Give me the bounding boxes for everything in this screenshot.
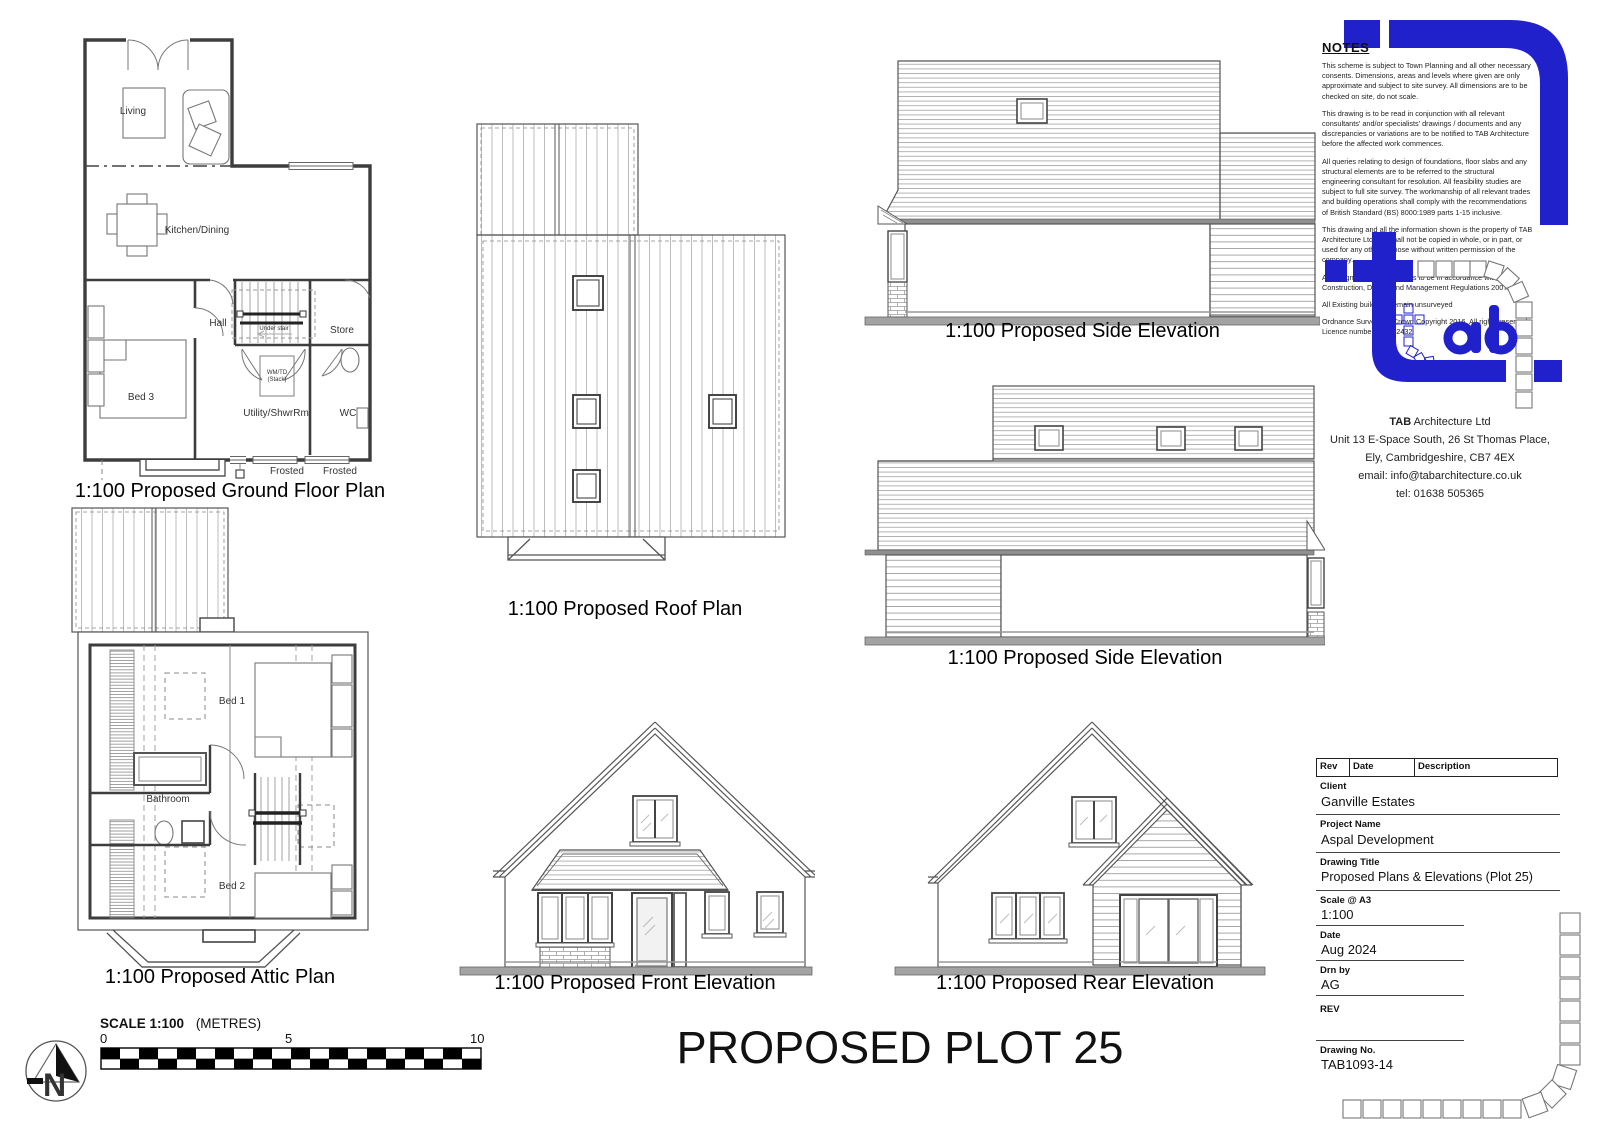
attic-plan-drawing: Bed 1 Bathroom Bed 2 — [60, 505, 400, 975]
side-elevation-1-drawing — [845, 50, 1320, 338]
label-bed3: Bed 3 — [128, 392, 155, 403]
front-door — [632, 893, 686, 969]
ground-floor-plan-drawing: Living Kitchen/Dining Hall Store Bed 3 U… — [60, 8, 400, 482]
label-bathroom: Bathroom — [146, 794, 189, 805]
caption-attic-plan: 1:100 Proposed Attic Plan — [55, 966, 385, 989]
label-frosted-1: Frosted — [270, 466, 304, 477]
tab-logo — [1320, 230, 1580, 415]
rear-left-window — [989, 893, 1067, 943]
rear-elevation-drawing — [880, 695, 1270, 995]
scale-bar-graphic — [100, 1047, 484, 1071]
scale-tick-0: 0 — [100, 1031, 107, 1046]
rev-col: Rev — [1317, 759, 1350, 776]
drawing-title-label: Drawing Title — [1320, 857, 1379, 868]
drawing-sheet: { "sheet": { "big_title": "PROPOSED PLOT… — [0, 0, 1600, 1131]
border-square-chain — [1330, 890, 1600, 1131]
living-furniture — [123, 88, 229, 164]
drawing-title-value: Proposed Plans & Elevations (Plot 25) — [1321, 870, 1533, 884]
entrance-door-opening — [126, 36, 190, 44]
bay-window-front — [536, 893, 614, 969]
label-bed1: Bed 1 — [219, 696, 246, 707]
project-label: Project Name — [1320, 819, 1381, 830]
entrance-door-arcs — [128, 40, 188, 70]
label-wc: WC — [340, 408, 357, 419]
caption-side-elevation-1: 1:100 Proposed Side Elevation — [845, 320, 1320, 343]
rear-gable-window — [1069, 797, 1119, 847]
client-value: Ganville Estates — [1321, 794, 1415, 809]
firm-tel: tel: 01638 505365 — [1318, 488, 1562, 500]
label-wm-td-2: (Stack) — [267, 377, 286, 383]
bay-window — [140, 460, 225, 476]
caption-roof-plan: 1:100 Proposed Roof Plan — [460, 598, 790, 621]
date-col: Date — [1350, 759, 1415, 776]
kitchen-table — [107, 194, 167, 256]
revision-table-header: Rev Date Description — [1316, 758, 1558, 777]
scale-bar-label: SCALE 1:100 (METRES) — [100, 1016, 500, 1031]
notes-paragraph: All queries relating to design of founda… — [1322, 157, 1534, 218]
roof-plan-drawing — [460, 110, 790, 570]
side-elevation-2-drawing — [845, 375, 1325, 650]
firm-address: TAB Architecture Ltd Unit 13 E-Space Sou… — [1318, 416, 1562, 506]
caption-side-elevation-2: 1:100 Proposed Side Elevation — [845, 647, 1325, 670]
wm-td-appliance — [260, 356, 294, 396]
scale-tick-10: 10 — [470, 1031, 484, 1046]
label-utility: Utility/ShwrRm — [243, 408, 309, 419]
caption-front-elevation: 1:100 Proposed Front Elevation — [455, 972, 815, 995]
label-kitchen-dining: Kitchen/Dining — [165, 225, 229, 236]
porch-roof-plan — [508, 537, 665, 560]
label-frosted-2: Frosted — [323, 466, 357, 477]
staircase — [232, 282, 315, 343]
label-under-stair: Under stair — [259, 326, 288, 332]
firm-address-line1: Unit 13 E-Space South, 26 St Thomas Plac… — [1318, 434, 1562, 446]
client-label: Client — [1320, 781, 1346, 792]
notes-paragraph: This drawing is to be read in conjunctio… — [1322, 109, 1534, 150]
notes-heading: NOTES — [1322, 40, 1534, 55]
caption-rear-elevation: 1:100 Proposed Rear Elevation — [880, 972, 1270, 995]
bed1-furniture — [255, 655, 352, 757]
dormer — [107, 930, 300, 967]
firm-email: email: info@tabarchitecture.co.uk — [1318, 470, 1562, 482]
scale-bar: SCALE 1:100 (METRES) 0 5 10 — [100, 1016, 500, 1071]
bed2-furniture — [255, 865, 352, 918]
ground-line — [865, 637, 1325, 645]
description-col: Description — [1415, 759, 1557, 776]
label-bed2: Bed 2 — [219, 881, 246, 892]
label-living: Living — [120, 106, 146, 117]
label-hall: Hall — [209, 318, 226, 329]
label-wm-td: WM/TD — [267, 370, 288, 376]
logo-letters-ab — [1448, 305, 1513, 353]
sheet-title: PROPOSED PLOT 25 — [600, 1022, 1200, 1074]
firm-address-line2: Ely, Cambridgeshire, CB7 4EX — [1318, 452, 1562, 464]
notes-paragraph: This scheme is subject to Town Planning … — [1322, 61, 1534, 102]
project-value: Aspal Development — [1321, 832, 1434, 847]
rear-french-doors — [1120, 895, 1217, 967]
gable-window — [630, 796, 680, 846]
label-store: Store — [330, 325, 354, 336]
front-elevation-drawing — [455, 695, 815, 995]
north-letter: N — [43, 1067, 66, 1103]
firm-name: TAB Architecture Ltd — [1318, 416, 1562, 428]
north-arrow-icon: N — [23, 1038, 89, 1104]
caption-ground-floor-plan: 1:100 Proposed Ground Floor Plan — [60, 480, 400, 503]
scale-tick-5: 5 — [285, 1031, 292, 1046]
